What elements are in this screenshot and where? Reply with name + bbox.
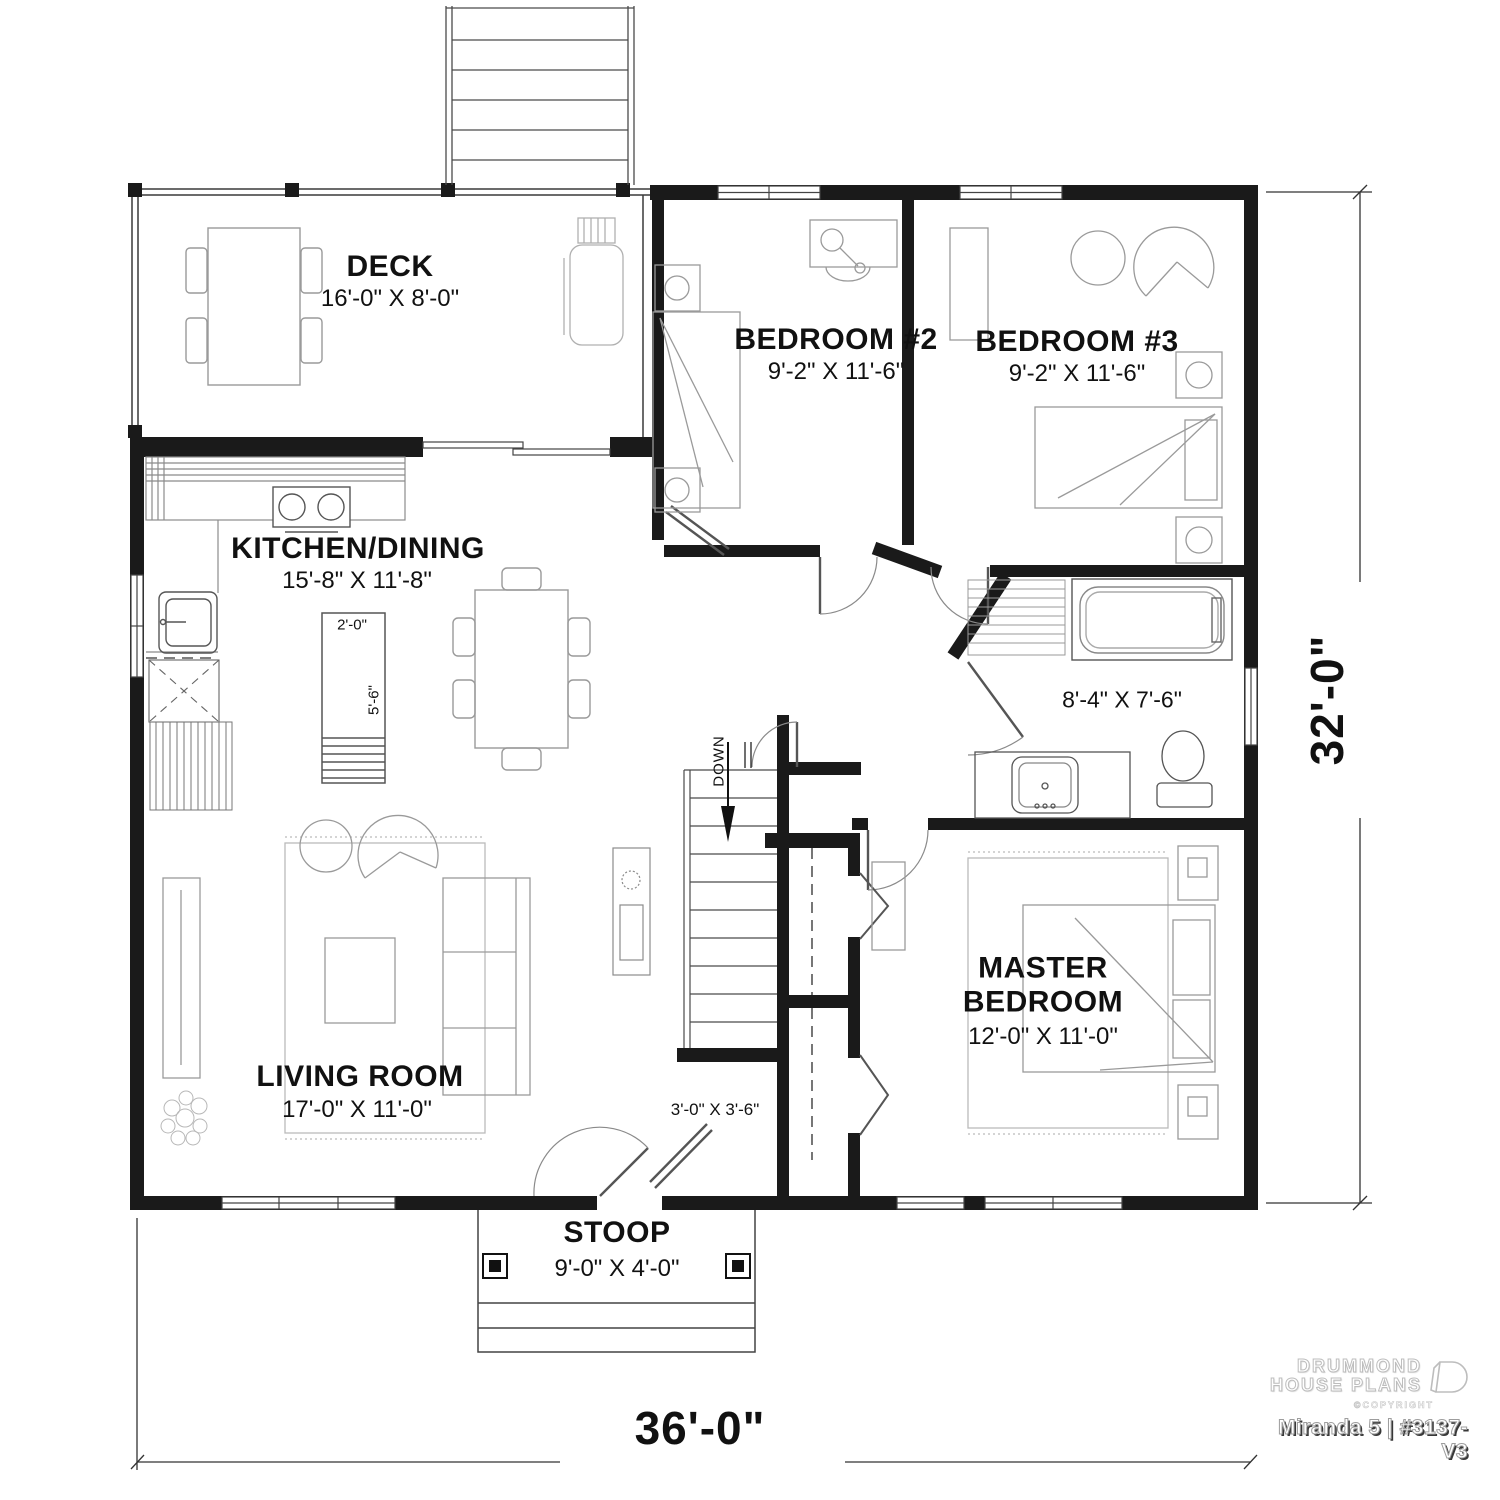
plant [161, 1091, 207, 1145]
brand-block: DRUMMOND HOUSE PLANS ©COPYRIGHT Miranda … [1268, 1354, 1468, 1464]
bedroom3-label: BEDROOM #3 [975, 325, 1178, 359]
bathtub [1072, 579, 1232, 660]
stove [273, 487, 350, 532]
bbq-grill [564, 218, 623, 345]
floor-plan-page: DECK 16'-0" X 8'-0" BEDROOM #2 9'-2" X 1… [0, 0, 1500, 1500]
brand-line2: HOUSE PLANS [1270, 1376, 1422, 1395]
deck-table-chairs [186, 228, 322, 385]
overall-width-dim: 36'-0" [635, 1401, 766, 1455]
stoop-dims: 9'-0" X 4'-0" [555, 1255, 680, 1283]
stairs-down-label: DOWN [711, 735, 728, 787]
master-bedroom-dims: 12'-0" X 11'-0" [968, 1023, 1118, 1051]
bathroom-dims: 8'-4" X 7'-6" [1062, 687, 1182, 714]
deck-stairs [446, 6, 634, 185]
bathroom-vanity [975, 752, 1130, 818]
stoop-label: STOOP [564, 1216, 671, 1250]
floor-plan-drawing [0, 0, 1500, 1500]
toilet [1157, 731, 1212, 807]
deck-label: DECK [346, 250, 433, 284]
kitchen-sink [159, 592, 217, 653]
overall-depth-dim: 32'-0" [1300, 635, 1354, 766]
kitchen-dining-label: KITCHEN/DINING [231, 532, 485, 566]
bedroom2-dims: 9'-2" X 11'-6" [768, 358, 905, 386]
brand-copyright: ©COPYRIGHT [1268, 1400, 1434, 1410]
brand-line1: DRUMMOND [1270, 1357, 1422, 1376]
pantry [149, 660, 219, 722]
entry-closet-dims: 3'-0" X 3'-6" [671, 1100, 760, 1120]
living-room-label: LIVING ROOM [256, 1060, 463, 1094]
living-room-dims: 17'-0" X 11'-0" [282, 1096, 432, 1124]
island-length-dim: 5'-6" [366, 685, 383, 715]
deck-dims: 16'-0" X 8'-0" [321, 285, 459, 313]
bedroom2-label: BEDROOM #2 [734, 323, 937, 357]
dining-table [453, 568, 590, 770]
island-width-dim: 2'-0" [337, 617, 367, 634]
media-console [613, 848, 650, 975]
kitchen-dining-dims: 15'-8" X 11'-8" [282, 567, 432, 595]
angled-walls [874, 548, 1006, 656]
plan-id: Miranda 5 | #3137-V3 [1268, 1416, 1468, 1464]
drummond-logo-icon [1428, 1354, 1468, 1398]
master-bedroom-label: MASTER BEDROOM [923, 951, 1163, 1018]
bedroom3-furniture [950, 227, 1222, 563]
refrigerator [150, 722, 232, 810]
bedroom3-dims: 9'-2" X 11'-6" [1009, 360, 1146, 388]
